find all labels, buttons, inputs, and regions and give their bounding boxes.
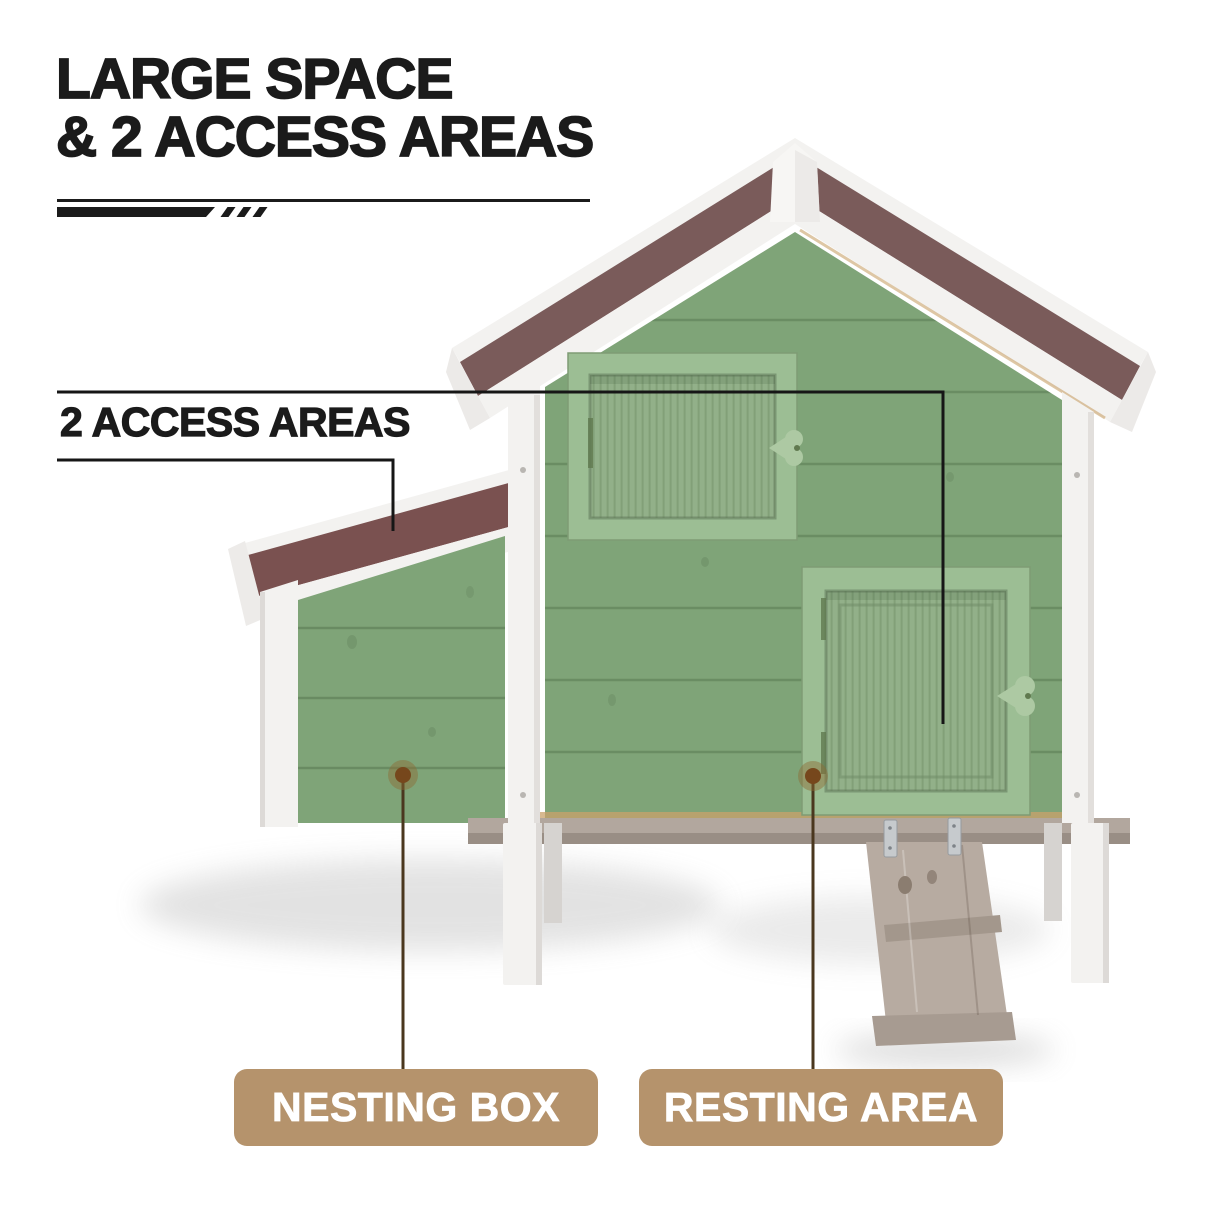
ramp-hinge [948,818,961,855]
access-areas-callout-label: 2 ACCESS AREAS [60,399,410,446]
nesting-box-label: NESTING BOX [234,1069,598,1146]
ramp-foot-board [872,1012,1016,1046]
door-slats [826,591,1006,791]
back-leg [1044,823,1062,921]
ramp-hinge [884,820,897,857]
ramp-knot [927,870,937,884]
lower-access-door [802,567,1035,815]
nesting-box-annex [228,467,540,827]
window-hinge [588,418,593,468]
product-feature-infographic: LARGE SPACE & 2 ACCESS AREAS [0,0,1214,1214]
floor-board [468,818,1130,833]
resting-area-label: RESTING AREA [639,1069,1003,1146]
window-shutter-slats [590,375,775,518]
annex-corner-post [260,580,298,827]
nesting-box-marker-dot [395,767,411,783]
chicken-ramp [866,818,1016,1046]
back-leg [544,823,562,923]
floor-board-edge [468,833,1130,844]
ramp-knot [898,876,912,894]
upper-access-window [568,353,803,540]
door-hinge [821,598,826,640]
resting-area-marker-dot [805,768,821,784]
chicken-coop-illustration [0,0,1214,1214]
